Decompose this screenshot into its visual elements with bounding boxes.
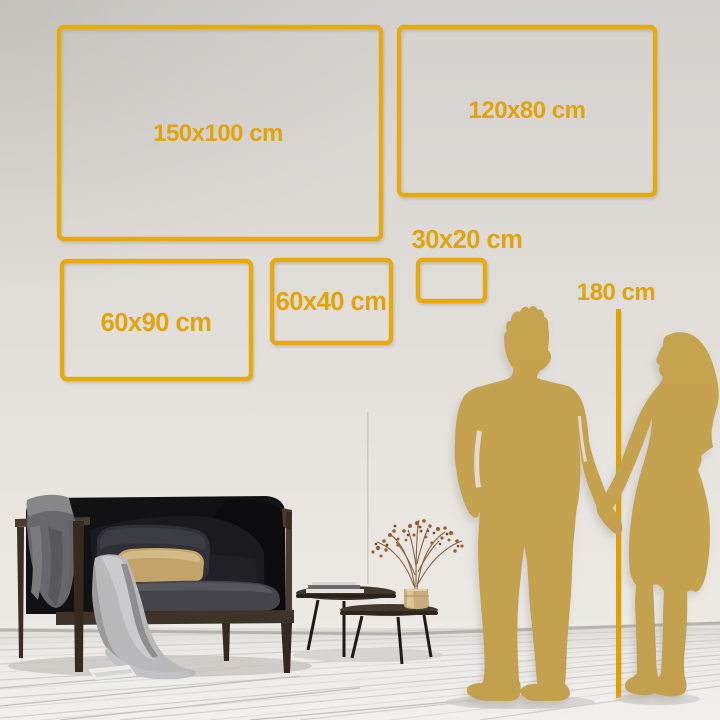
svg-text:30x20 cm: 30x20 cm — [412, 226, 523, 254]
svg-text:60x40 cm: 60x40 cm — [276, 288, 387, 316]
svg-text:180 cm: 180 cm — [577, 279, 655, 306]
svg-text:120x80 cm: 120x80 cm — [469, 97, 586, 124]
svg-text:150x100 cm: 150x100 cm — [153, 120, 283, 147]
svg-text:60x90 cm: 60x90 cm — [101, 309, 212, 337]
